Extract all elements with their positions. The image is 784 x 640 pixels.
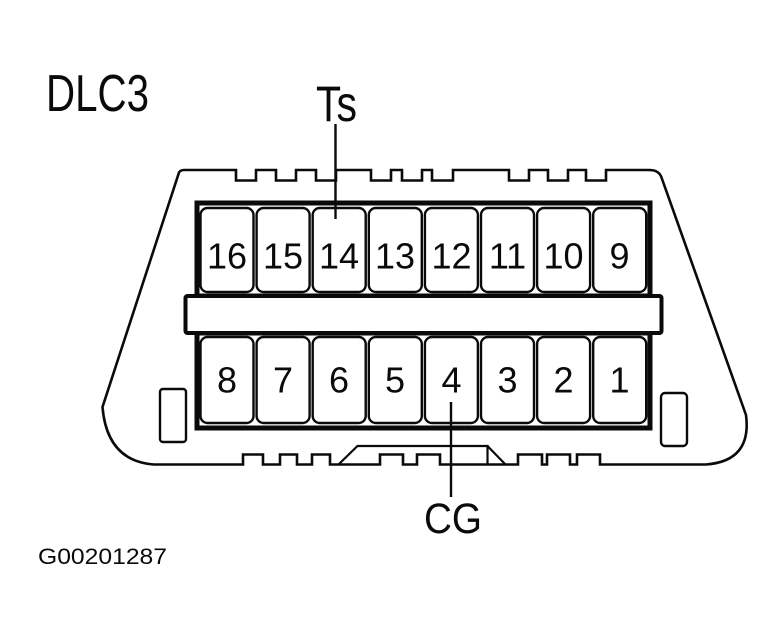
pin-3-number: 3 bbox=[497, 360, 517, 401]
dlc3-connector-diagram: DLC3 16 15 14 13 12 11 10 bbox=[0, 0, 784, 640]
pin-11-number: 11 bbox=[489, 236, 526, 277]
left-key-slot bbox=[160, 389, 186, 442]
center-divider-bar bbox=[186, 296, 662, 333]
pin-4-number: 4 bbox=[441, 360, 461, 401]
diagram-title: DLC3 bbox=[46, 65, 149, 123]
pin-12-number: 12 bbox=[431, 236, 471, 277]
pin-2-number: 2 bbox=[553, 360, 573, 401]
pin-16-number: 16 bbox=[207, 236, 247, 277]
pin-6-number: 6 bbox=[329, 360, 349, 401]
cg-label: CG bbox=[424, 495, 482, 543]
pin-14-number: 14 bbox=[319, 236, 359, 277]
diagram-page: DLC3 16 15 14 13 12 11 10 bbox=[0, 0, 784, 640]
pin-1-number: 1 bbox=[609, 360, 629, 401]
pin-7-number: 7 bbox=[273, 360, 293, 401]
pin-15-number: 15 bbox=[263, 236, 303, 277]
pin-9-number: 9 bbox=[609, 236, 629, 277]
pin-8-number: 8 bbox=[217, 360, 237, 401]
pin-13-number: 13 bbox=[375, 236, 415, 277]
figure-number: G00201287 bbox=[38, 544, 167, 569]
right-key-slot bbox=[661, 393, 687, 446]
ts-label: Ts bbox=[316, 76, 357, 132]
pin-10-number: 10 bbox=[543, 236, 583, 277]
pin-5-number: 5 bbox=[385, 360, 405, 401]
